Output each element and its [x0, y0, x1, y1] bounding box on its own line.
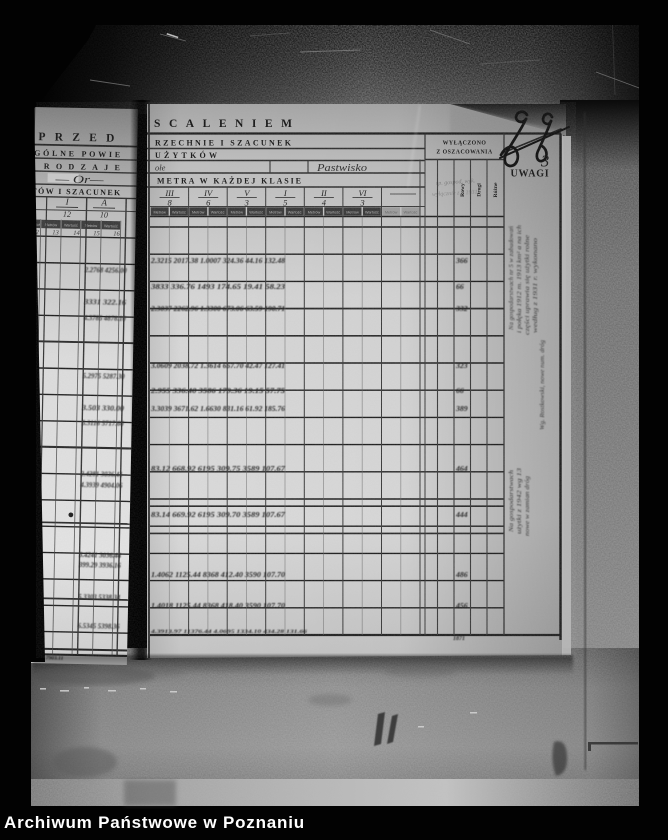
svg-text:Archiwum Państwowe w Poznaniu: Archiwum Państwowe w Poznaniu — [4, 813, 305, 832]
